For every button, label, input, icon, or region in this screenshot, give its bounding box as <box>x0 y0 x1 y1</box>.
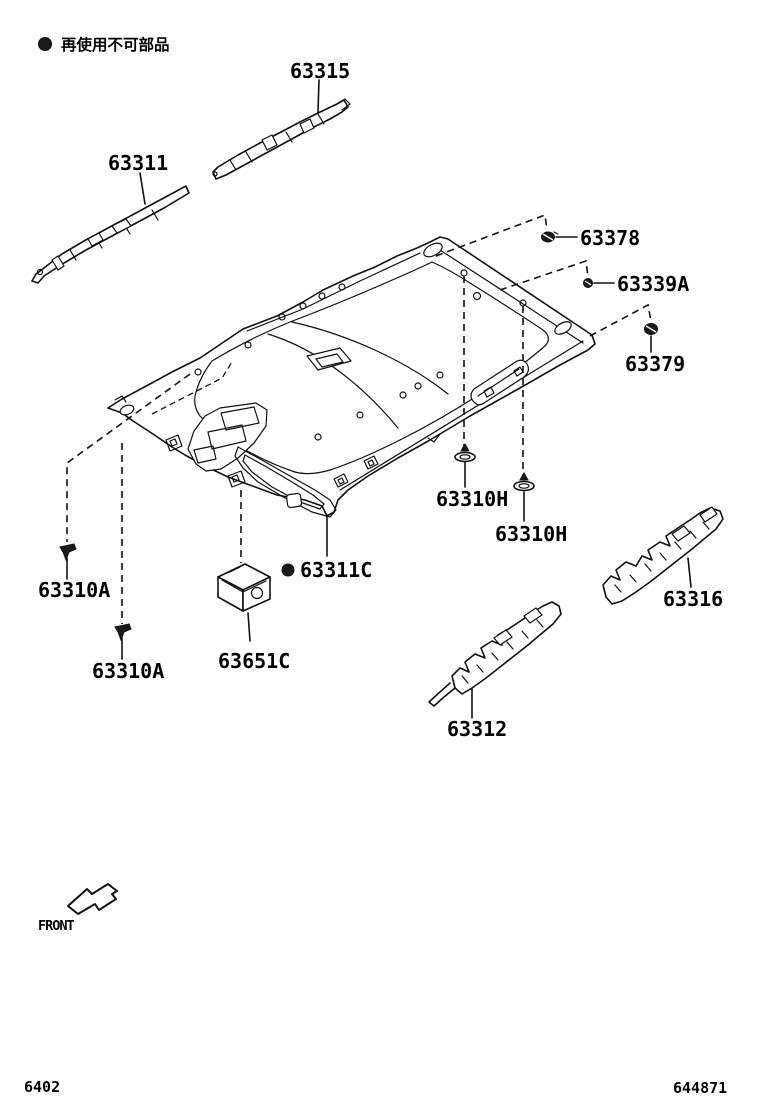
part-label-63311c: 63311C <box>300 558 372 582</box>
footer-figure-code: 644871 <box>673 1079 727 1097</box>
non-reusable-dot-icon <box>282 564 294 576</box>
part-drawing-63312-bracket <box>429 602 561 706</box>
front-arrow-icon <box>68 884 117 914</box>
part-label-63310h-rear: 63310H <box>436 487 508 511</box>
fastener-63310h-rear-icon <box>455 444 475 462</box>
part-label-63310a-right: 63310A <box>92 659 164 683</box>
footer-page-code: 6402 <box>24 1078 60 1096</box>
part-label-63315: 63315 <box>290 59 350 83</box>
non-reusable-dot-icon <box>39 38 52 51</box>
screw-63310a-right-icon <box>115 624 131 640</box>
part-drawing-headlining <box>108 237 595 517</box>
map-lamp-box-63651c <box>218 564 270 611</box>
part-drawing-63315-pad <box>213 99 350 179</box>
front-label: FRONT <box>38 918 75 934</box>
legend-text: 再使用不可部品 <box>61 35 170 54</box>
parts-diagram-page: 再使用不可部品 <box>0 0 760 1112</box>
part-label-63379: 63379 <box>625 352 685 376</box>
roof-headlining-diagram: 再使用不可部品 <box>0 0 760 1112</box>
screw-63310a-left-icon <box>60 544 76 560</box>
part-label-63316: 63316 <box>663 587 723 611</box>
part-label-63378: 63378 <box>580 226 640 250</box>
part-label-63339a: 63339A <box>617 272 689 296</box>
part-label-63310a-left: 63310A <box>38 578 110 602</box>
fastener-63310h-front-icon <box>514 473 534 491</box>
clip-63379-icon <box>645 324 658 335</box>
part-drawing-63311-pad <box>32 186 189 283</box>
legend: 再使用不可部品 <box>39 35 170 54</box>
footer: 6402 644871 <box>24 1078 727 1097</box>
part-label-63312: 63312 <box>447 717 507 741</box>
part-label-63311: 63311 <box>108 151 168 175</box>
part-label-63651c: 63651C <box>218 649 290 673</box>
clip-63339a-icon <box>584 279 593 288</box>
part-label-63310h-front: 63310H <box>495 522 567 546</box>
front-indicator: FRONT <box>38 884 117 934</box>
